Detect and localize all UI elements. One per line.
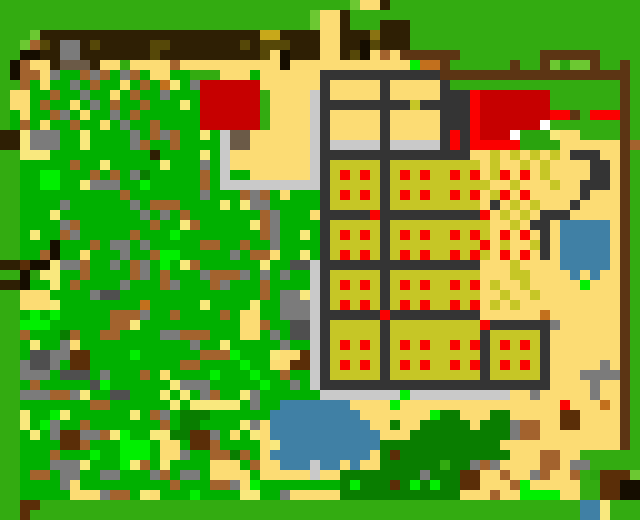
leafy-field[interactable] xyxy=(480,152,550,388)
small-pond-south[interactable] xyxy=(598,500,624,520)
south-tree-grove[interactable] xyxy=(330,400,520,498)
east-pond[interactable] xyxy=(555,218,610,268)
east-fence-line[interactable] xyxy=(620,62,632,446)
animal-pen[interactable] xyxy=(540,52,602,82)
north-road[interactable] xyxy=(320,0,346,66)
game-viewport xyxy=(0,0,640,520)
